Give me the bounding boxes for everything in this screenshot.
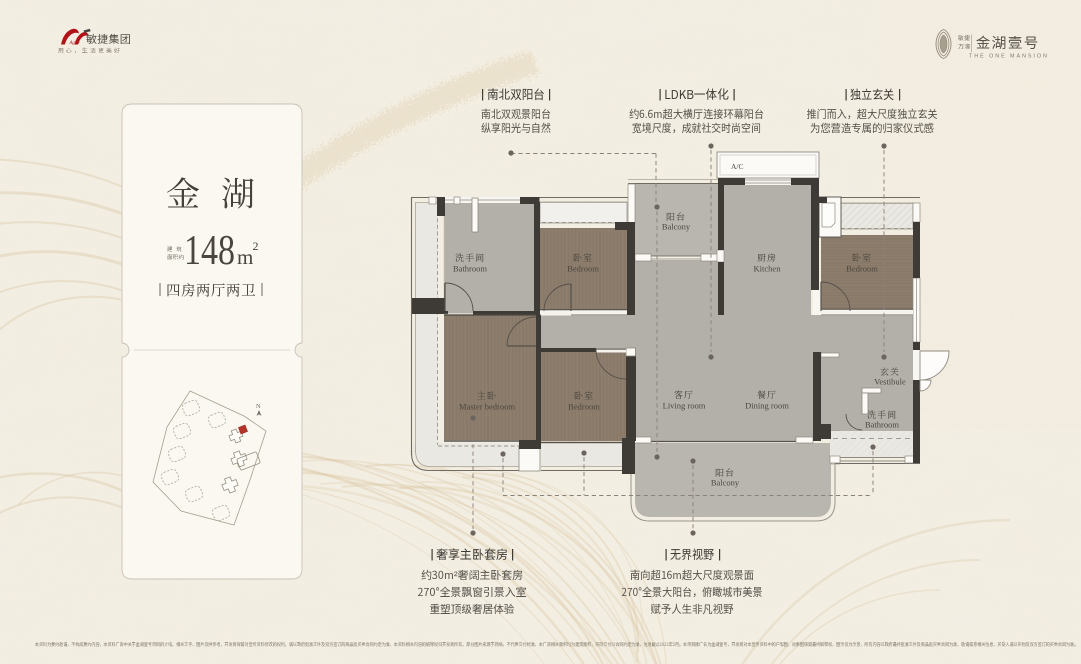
svg-text:m: m	[237, 245, 253, 269]
svg-text:建 筑: 建 筑	[166, 245, 183, 253]
svg-text:Bedroom: Bedroom	[567, 264, 599, 274]
svg-text:Balcony: Balcony	[662, 222, 691, 232]
svg-text:Bedroom: Bedroom	[846, 264, 878, 274]
svg-text:本资料为要约邀请，不构成要约内容，本资料广告中关于金湖壹号项: 本资料为要约邀请，不构成要约内容，本资料广告中关于金湖壹号项目的介绍，相关文字、…	[35, 641, 1078, 648]
svg-text:Balcony: Balcony	[711, 478, 740, 488]
svg-text:约30m²奢阔主卧套房: 约30m²奢阔主卧套房	[421, 567, 523, 583]
svg-text:主卧: 主卧	[477, 389, 497, 402]
svg-text:宽境尺度，成就社交时尚空间: 宽境尺度，成就社交时尚空间	[632, 120, 761, 136]
svg-text:Vestibule: Vestibule	[874, 377, 906, 387]
svg-text:卧室: 卧室	[852, 251, 872, 264]
svg-text:重塑顶级奢居体验: 重塑顶级奢居体验	[430, 601, 515, 617]
svg-text:卧室: 卧室	[574, 389, 594, 402]
svg-text:客厅: 客厅	[674, 388, 694, 401]
svg-text:纵享阳光与自然: 纵享阳光与自然	[481, 120, 551, 136]
svg-text:卧室: 卧室	[573, 251, 593, 264]
svg-text:2: 2	[253, 239, 259, 253]
svg-text:Bathroom: Bathroom	[865, 420, 899, 430]
svg-text:用心，生活更美好: 用心，生活更美好	[58, 46, 122, 55]
svg-text:A/C: A/C	[731, 162, 744, 171]
svg-text:湖: 湖	[221, 167, 255, 216]
svg-text:270°全景大阳台，俯瞰城市美景: 270°全景大阳台，俯瞰城市美景	[622, 584, 763, 600]
svg-text:南向超16m超大尺度观景面: 南向超16m超大尺度观景面	[630, 567, 754, 583]
svg-text:无界视野: 无界视野	[670, 544, 714, 563]
svg-text:金: 金	[166, 167, 200, 216]
svg-text:LDKB一体化: LDKB一体化	[664, 84, 729, 103]
svg-text:N: N	[256, 403, 261, 410]
svg-text:金湖壹号: 金湖壹号	[976, 32, 1040, 53]
svg-text:Dining room: Dining room	[745, 401, 789, 411]
svg-text:餐厅: 餐厅	[757, 388, 777, 401]
svg-text:Bedroom: Bedroom	[568, 402, 600, 412]
svg-text:为您营造专属的归家仪式感: 为您营造专属的归家仪式感	[810, 120, 934, 136]
svg-text:赋予人生非凡视野: 赋予人生非凡视野	[651, 601, 735, 617]
svg-text:Kitchen: Kitchen	[754, 264, 782, 274]
svg-text:THE ONE MANSION: THE ONE MANSION	[969, 53, 1049, 59]
svg-text:Bathroom: Bathroom	[453, 264, 487, 274]
svg-text:洗手间: 洗手间	[455, 251, 485, 264]
svg-text:270°全景飘窗引景入室: 270°全景飘窗引景入室	[418, 584, 527, 600]
svg-text:厨房: 厨房	[757, 251, 777, 264]
svg-text:万濠: 万濠	[958, 42, 971, 51]
svg-text:四房两厅两卫: 四房两厅两卫	[166, 280, 256, 301]
svg-text:奢享主卧套房: 奢享主卧套房	[436, 544, 508, 563]
svg-text:Master bedroom: Master bedroom	[459, 402, 515, 412]
svg-text:南北双阳台: 南北双阳台	[486, 84, 545, 103]
svg-text:面积约: 面积约	[167, 253, 184, 261]
svg-text:独立玄关: 独立玄关	[850, 84, 894, 103]
svg-text:Living room: Living room	[663, 401, 706, 411]
svg-text:148: 148	[184, 228, 235, 274]
svg-text:敏捷集团: 敏捷集团	[86, 31, 131, 47]
